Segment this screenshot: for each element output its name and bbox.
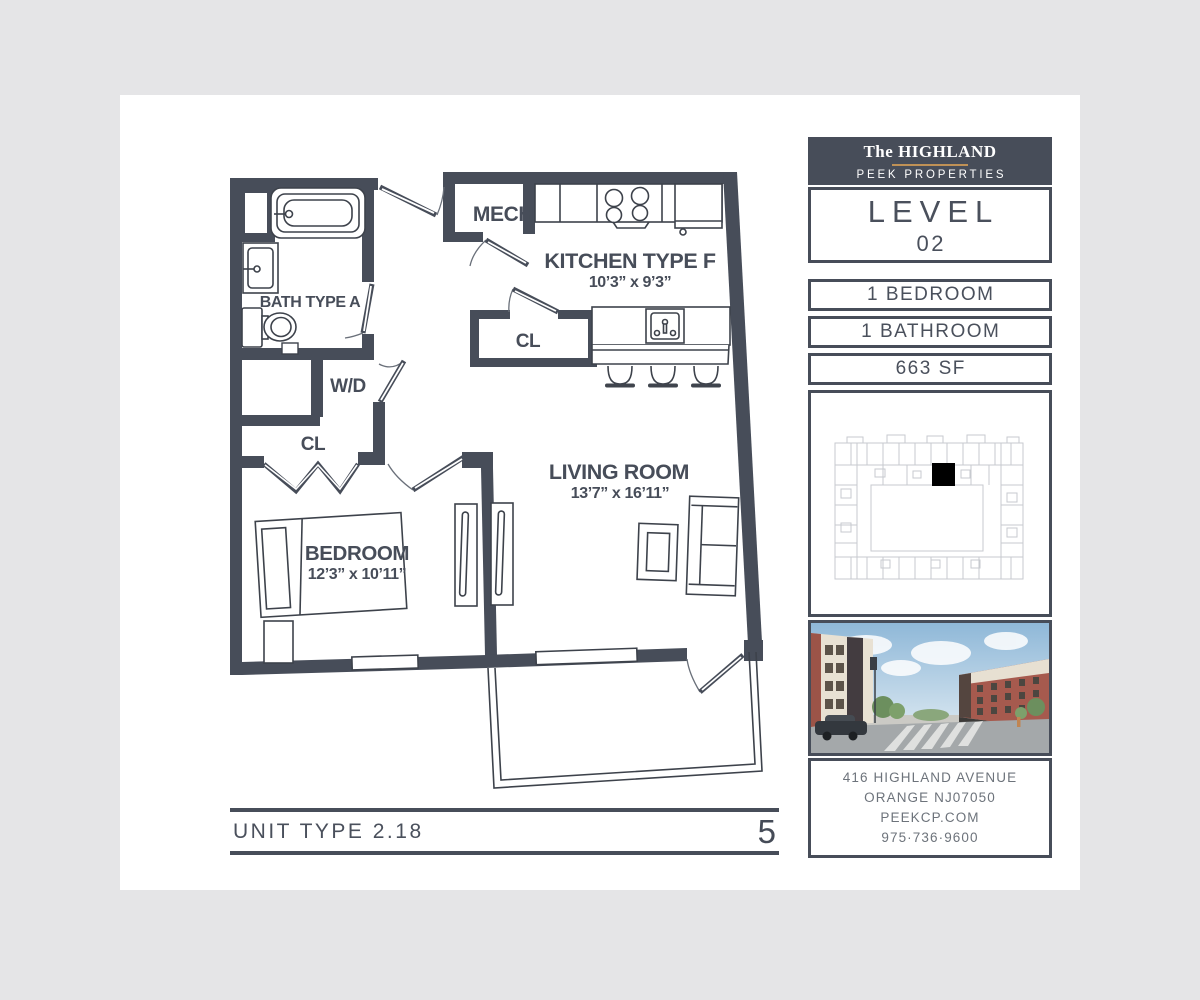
level-number: 02: [914, 231, 946, 257]
wall-fixture: [282, 343, 298, 354]
address-line-1: 416 HIGHLAND AVENUE: [843, 768, 1017, 788]
toilet: [242, 308, 296, 347]
living-room-dims: 13’7” x 16’11”: [571, 485, 670, 502]
brand-title: The HIGHLAND: [863, 142, 996, 162]
spec-bathrooms: 1 BATHROOM: [808, 316, 1052, 348]
bath-label: BATH TYPE A: [260, 294, 361, 311]
bathtub: [271, 188, 365, 238]
level-box: LEVEL 02: [808, 187, 1052, 263]
washer-dryer-label: W/D: [330, 376, 366, 397]
keyplan-drawing: [811, 393, 1049, 614]
phone: 975·736·9600: [881, 828, 978, 848]
level-label: LEVEL: [861, 194, 1000, 230]
sheet-number: 5: [758, 813, 776, 851]
bedroom-dims: 12’3” x 10’11”: [308, 566, 407, 583]
island-sink: [646, 309, 684, 343]
hall-closet-label: CL: [301, 434, 326, 455]
nightstand: [264, 621, 293, 663]
building-photo: [808, 620, 1052, 756]
mech-label: MECH: [473, 203, 533, 226]
building-rendering: [811, 623, 1049, 753]
contact-box: 416 HIGHLAND AVENUE ORANGE NJ07050 PEEKC…: [808, 758, 1052, 858]
info-sidebar: The HIGHLAND PEEK PROPERTIES LEVEL 02 1 …: [808, 137, 1052, 858]
spec-area: 663 SF: [808, 353, 1052, 385]
bath-sink: [243, 243, 278, 293]
gold-rule: [892, 164, 968, 166]
brand-prefix: The: [863, 142, 893, 161]
building-keyplan: [808, 390, 1052, 617]
left-building: [811, 633, 873, 727]
sofa: [686, 496, 738, 596]
unit-location-marker: [932, 463, 955, 486]
kitchen-label: KITCHEN TYPE F: [544, 249, 715, 273]
coffee-table: [637, 523, 678, 580]
bedroom-label: BEDROOM: [305, 542, 409, 565]
floorplan-drawing: BATH TYPE A MECH KITCHEN TYPE F 10’3” x …: [225, 165, 785, 810]
living-window: [536, 648, 637, 665]
kitchen-closet-label: CL: [516, 331, 541, 352]
living-room-label: LIVING ROOM: [549, 460, 689, 484]
unit-type-label: UNIT TYPE 2.18: [233, 820, 424, 844]
bath-niche: [245, 193, 267, 233]
bedroom-window: [352, 655, 418, 670]
pedestrian: [1017, 717, 1021, 727]
brand-header: The HIGHLAND PEEK PROPERTIES: [808, 137, 1052, 185]
fridge: [675, 184, 722, 235]
brand-company: PEEK PROPERTIES: [854, 169, 1007, 181]
kitchen-dims: 10’3” x 9’3”: [589, 274, 671, 291]
unit-title-bar: UNIT TYPE 2.18 5: [230, 808, 779, 855]
brand-name: HIGHLAND: [898, 142, 996, 161]
bar-stools: [605, 366, 721, 388]
spec-bedrooms: 1 BEDROOM: [808, 279, 1052, 311]
website: PEEKCP.COM: [880, 808, 979, 828]
address-line-2: ORANGE NJ07050: [864, 788, 996, 808]
